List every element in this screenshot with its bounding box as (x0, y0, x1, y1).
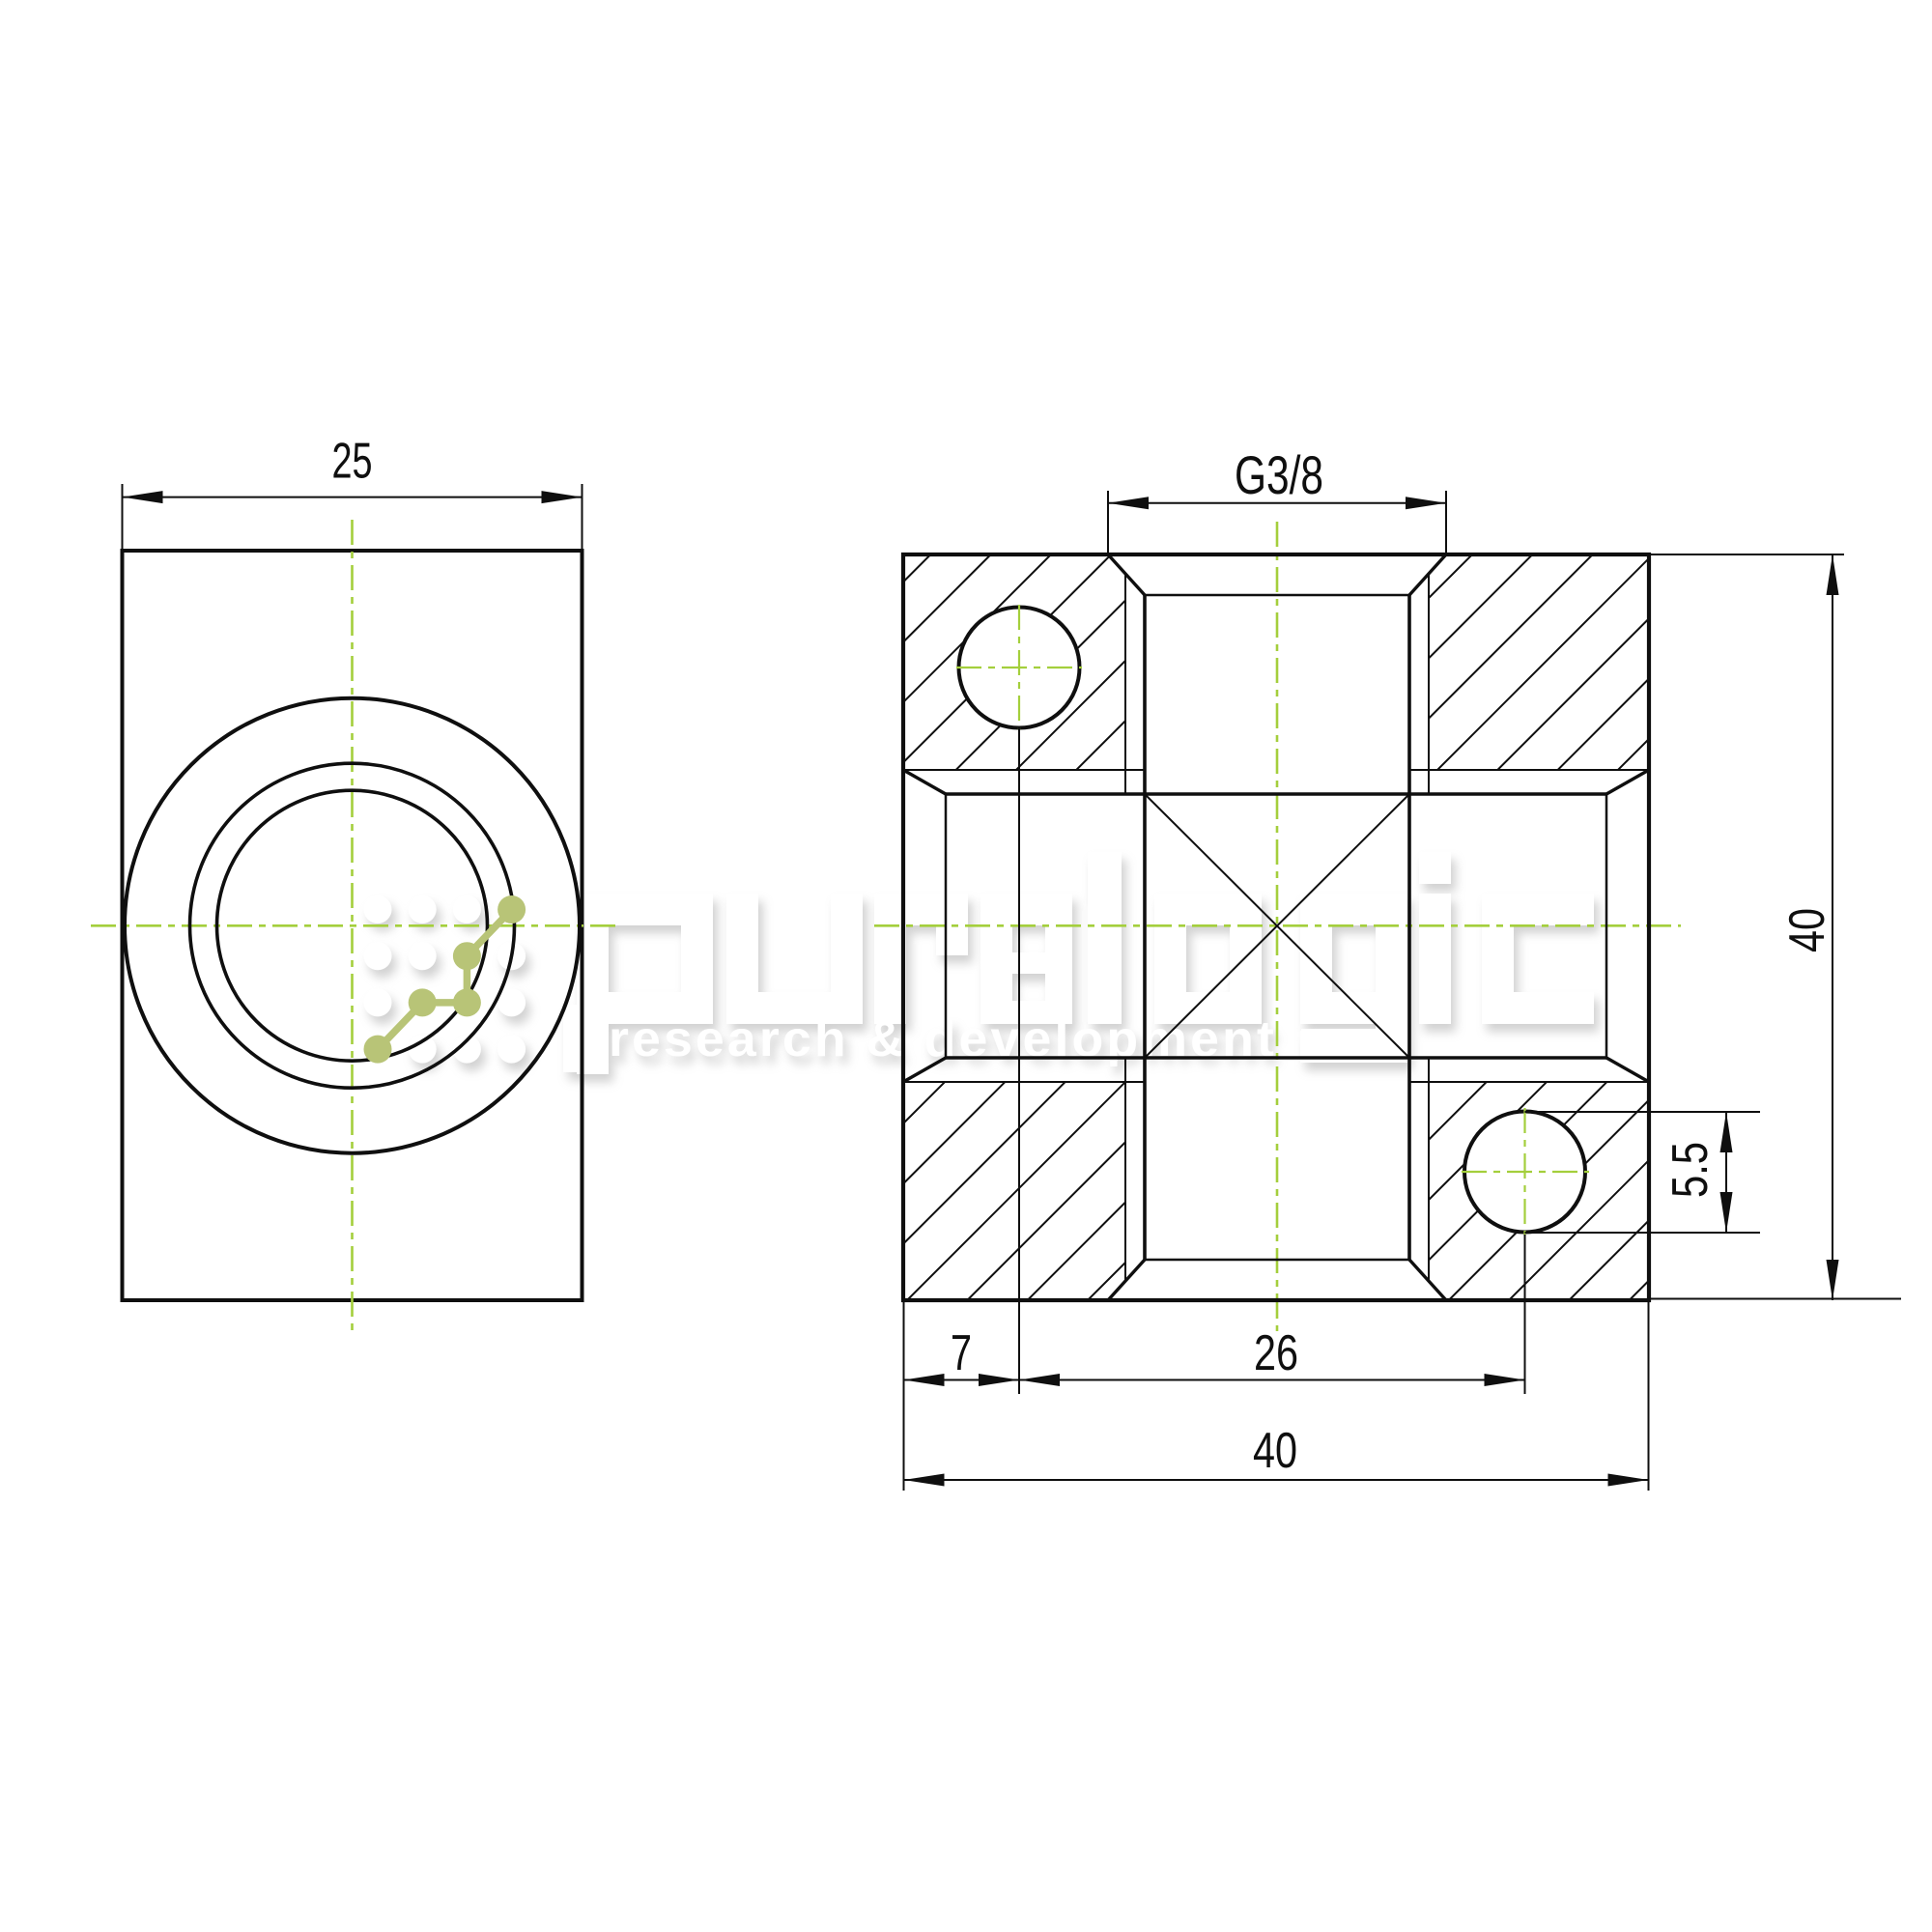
svg-text:7: 7 (951, 1325, 972, 1381)
svg-text:26: 26 (1254, 1325, 1298, 1381)
svg-text:25: 25 (332, 434, 373, 490)
svg-text:G3/8: G3/8 (1235, 444, 1323, 505)
svg-text:5.5: 5.5 (1662, 1142, 1719, 1198)
svg-text:40: 40 (1253, 1423, 1297, 1479)
svg-text:40: 40 (1779, 908, 1835, 952)
